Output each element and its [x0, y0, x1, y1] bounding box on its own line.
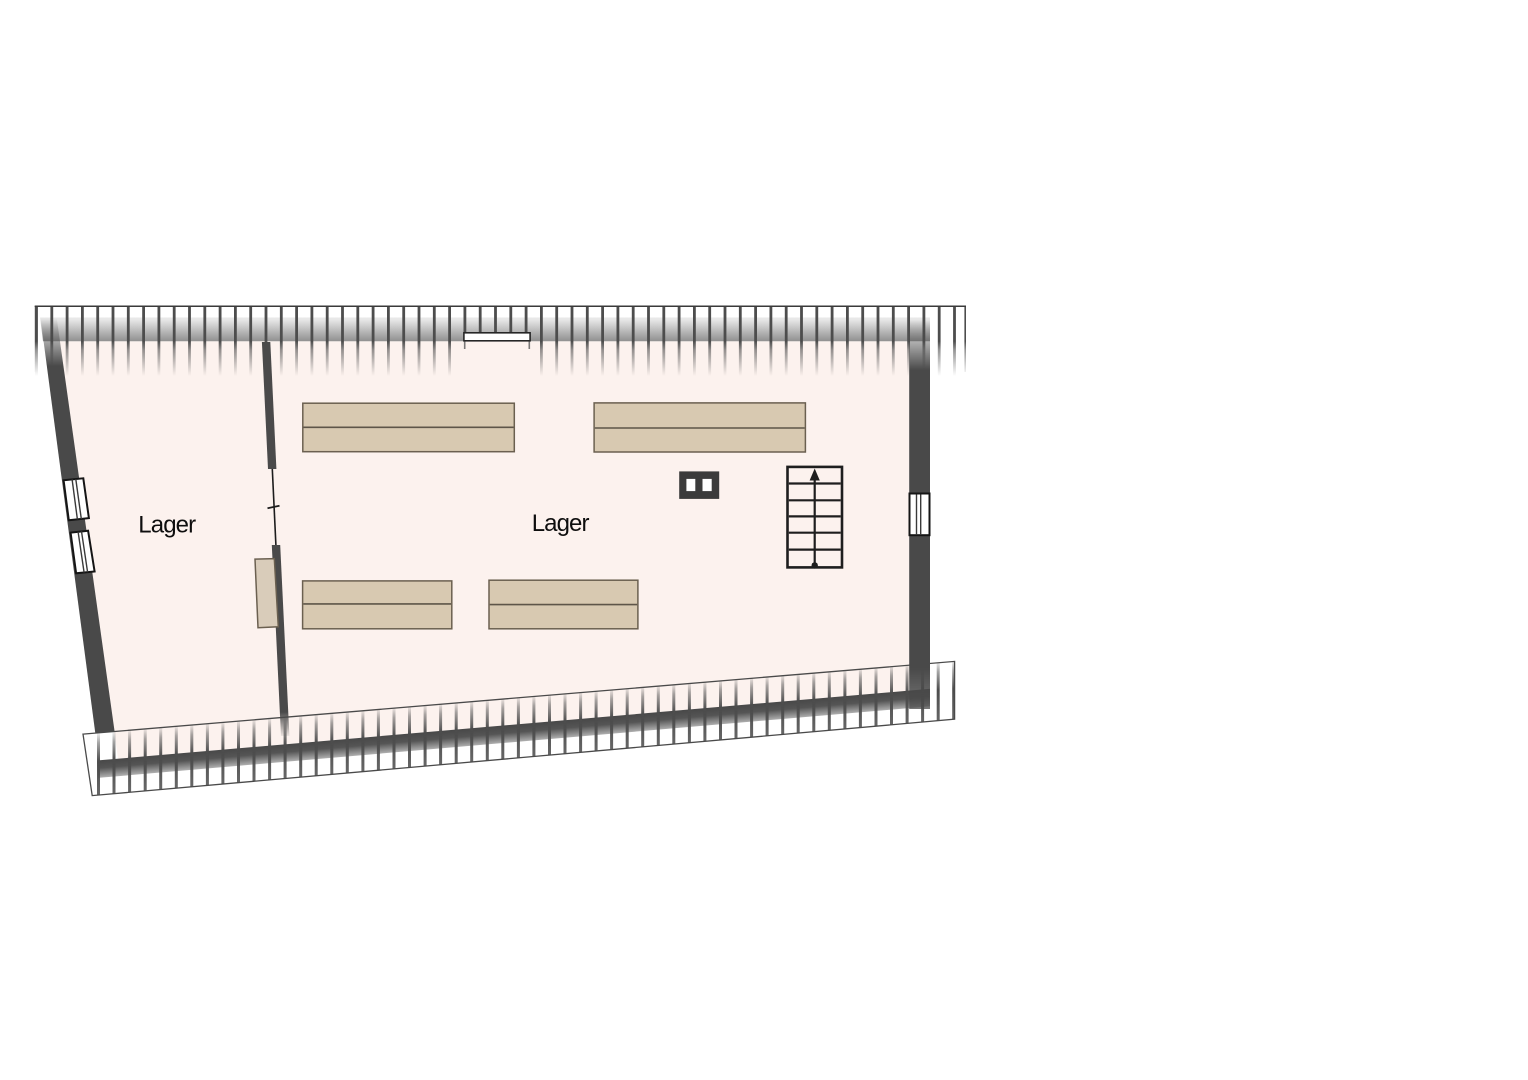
svg-text:Lager: Lager — [532, 510, 590, 537]
svg-text:Lager: Lager — [138, 511, 196, 538]
